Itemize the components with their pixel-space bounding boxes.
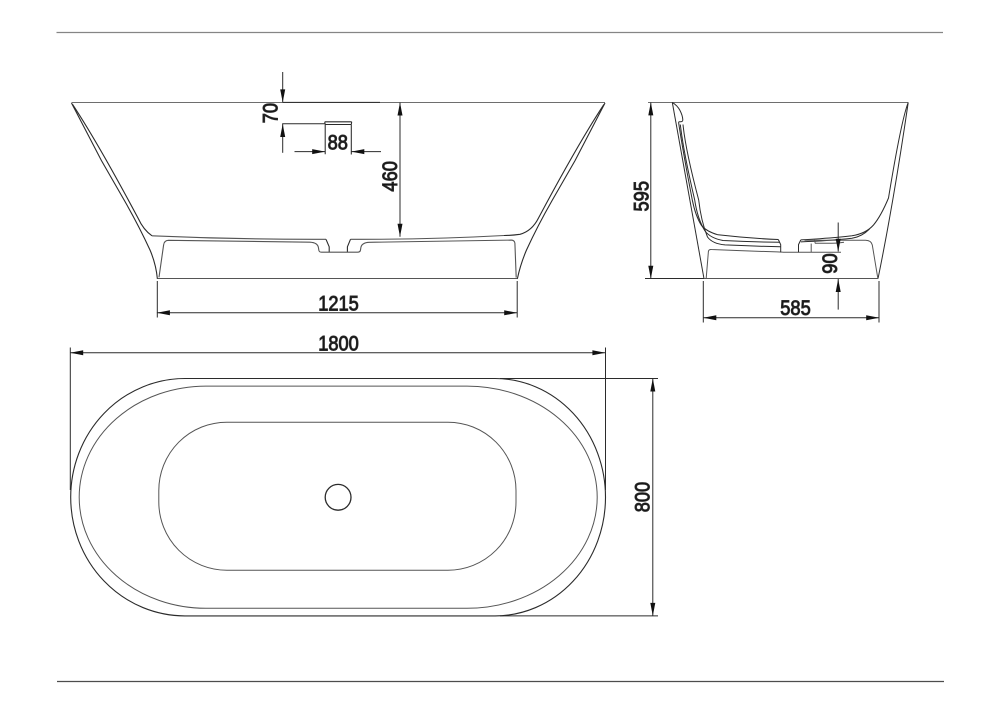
svg-text:800: 800 [630,482,654,513]
svg-text:70: 70 [259,103,283,123]
svg-text:595: 595 [629,181,653,212]
svg-text:1800: 1800 [318,332,359,356]
svg-text:1215: 1215 [318,291,359,315]
svg-text:88: 88 [328,131,348,155]
svg-text:90: 90 [818,253,842,273]
svg-text:585: 585 [780,296,811,320]
svg-text:460: 460 [378,161,402,192]
